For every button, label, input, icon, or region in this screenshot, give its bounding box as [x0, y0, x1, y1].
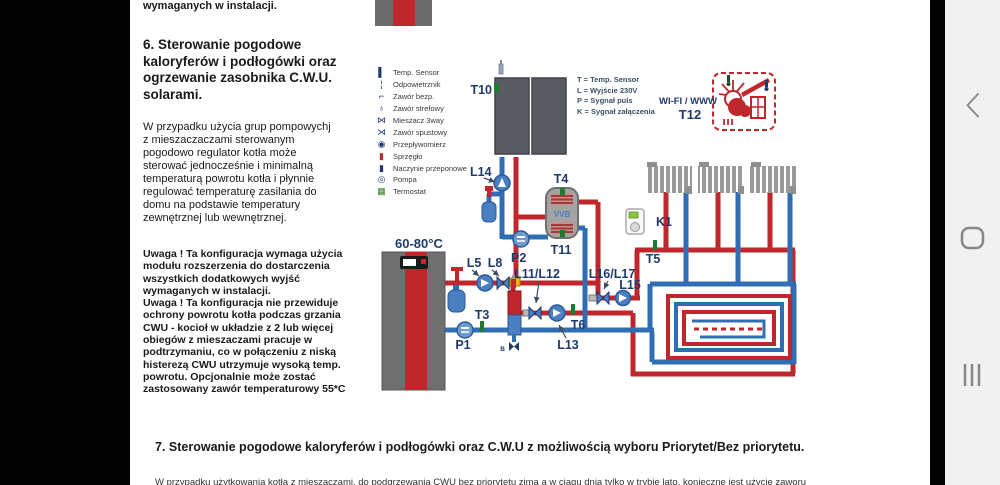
- legend-item-label: Mieszacz 3way: [393, 116, 444, 125]
- signal-legend-line: K = Sygnał załączenia: [577, 107, 677, 118]
- pdf-document-page: wymaganych w instalacji. 6. Sterowanie p…: [130, 0, 930, 485]
- legend-item: ▦Termostat: [376, 186, 486, 198]
- android-navigation-bar: [945, 0, 1000, 485]
- back-chevron-icon: [945, 85, 1000, 125]
- section-6-paragraph: W przypadku użycia grup pompowychj z mie…: [143, 121, 335, 225]
- back-button[interactable]: [945, 85, 1000, 125]
- legend-item-label: Termostat: [393, 187, 426, 196]
- zone-valve-icon: ♁: [376, 104, 387, 113]
- section-6-heading: 6. Sterowanie pogodowe kaloryferów i pod…: [143, 37, 340, 104]
- hydraulic-separator-icon: ▮: [376, 152, 387, 161]
- legend-item-label: Naczynie przeponowe: [393, 164, 467, 173]
- section-7-heading: 7. Sterowanie pogodowe kaloryferów i pod…: [155, 440, 845, 454]
- previous-paragraph-fragment: wymaganych w instalacji.: [143, 0, 353, 12]
- legend-item-label: Sprzęgło: [393, 152, 423, 161]
- recents-button[interactable]: [945, 355, 1000, 395]
- device-screen: wymaganych w instalacji. 6. Sterowanie p…: [0, 0, 1000, 485]
- signal-legend-line: L = Wyjście 230V: [577, 86, 677, 97]
- signal-legend: T = Temp. Sensor L = Wyjście 230V P = Sy…: [577, 75, 677, 117]
- legend-item-label: Temp. Sensor: [393, 68, 439, 77]
- temp-sensor-icon: ▌: [376, 68, 387, 77]
- home-icon: [945, 218, 1000, 258]
- expansion-vessel-icon: ▮: [376, 164, 387, 173]
- legend-item: ▮Naczynie przeponowe: [376, 162, 486, 174]
- legend-item-label: Przepływomierz: [393, 140, 446, 149]
- page-edge-gap: [930, 0, 945, 485]
- legend-item: ¦Odpowietrznik: [376, 79, 486, 91]
- legend-item-label: Zawór strefowy: [393, 104, 444, 113]
- thermostat-icon: ▦: [376, 187, 387, 196]
- legend-item: ◎Pompa: [376, 174, 486, 186]
- legend-item: ▌Temp. Sensor: [376, 67, 486, 79]
- legend-item: ♁Zawór strefowy: [376, 103, 486, 115]
- flow-meter-icon: ◉: [376, 140, 387, 149]
- symbol-legend: ▌Temp. Sensor ¦Odpowietrznik ⌐Zawór bezp…: [376, 67, 486, 198]
- legend-item: ▮Sprzęgło: [376, 150, 486, 162]
- signal-legend-line: T = Temp. Sensor: [577, 75, 677, 86]
- legend-item: ⌐Zawór bezp.: [376, 91, 486, 103]
- air-vent-icon: ¦: [376, 80, 387, 89]
- note-2: Uwaga ! Ta konfiguracja nie przewiduje o…: [143, 297, 347, 395]
- legend-item-label: Pompa: [393, 175, 417, 184]
- legend-item-label: Odpowietrznik: [393, 80, 441, 89]
- pump-icon: ◎: [376, 175, 387, 184]
- legend-item: ⋊Zawór spustowy: [376, 126, 486, 138]
- legend-item: ⋈Mieszacz 3way: [376, 115, 486, 127]
- section-7-paragraph-clipped: W przypadku użytkowania kotła z mieszacz…: [155, 477, 875, 485]
- legend-item: ◉Przepływomierz: [376, 138, 486, 150]
- legend-item-label: Zawór bezp.: [393, 92, 434, 101]
- drain-valve-icon: ⋊: [376, 128, 387, 137]
- note-1: Uwaga ! Ta konfiguracja wymaga użycia mo…: [143, 248, 347, 297]
- recents-icon: [945, 355, 1000, 395]
- safety-valve-icon: ⌐: [376, 92, 387, 101]
- mixer-3way-icon: ⋈: [376, 116, 387, 125]
- signal-legend-line: P = Sygnał puls: [577, 96, 677, 107]
- section-6-notes: Uwaga ! Ta konfiguracja wymaga użycia mo…: [143, 248, 347, 395]
- home-button[interactable]: [945, 218, 1000, 258]
- legend-item-label: Zawór spustowy: [393, 128, 447, 137]
